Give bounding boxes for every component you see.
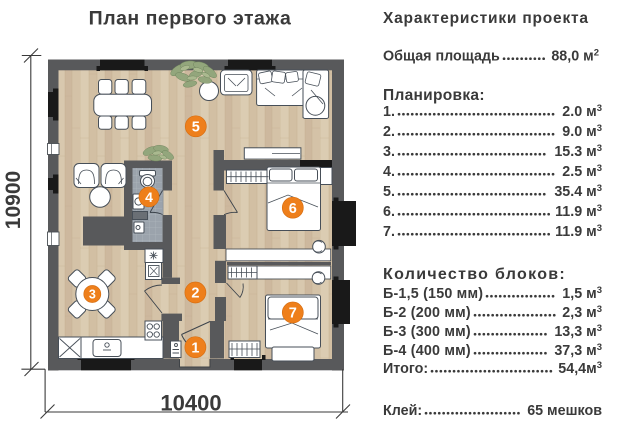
svg-text:Характеристики проекта: Характеристики проекта: [383, 10, 589, 27]
svg-text:План первого этажа: План первого этажа: [89, 8, 292, 30]
svg-text:6.: 6.: [383, 204, 395, 220]
svg-text:13,3 м3: 13,3 м3: [554, 323, 602, 340]
svg-text:3.: 3.: [383, 144, 395, 160]
svg-text:5.: 5.: [383, 184, 395, 200]
svg-text:54,4м3: 54,4м3: [558, 360, 602, 377]
svg-text:Б-1,5 (150 мм): Б-1,5 (150 мм): [383, 286, 483, 302]
svg-text:2.5 м3: 2.5 м3: [562, 163, 602, 180]
svg-text:10400: 10400: [160, 391, 221, 416]
svg-text:1.: 1.: [383, 104, 395, 120]
svg-text:15.3 м3: 15.3 м3: [554, 143, 602, 160]
svg-text:2,3 м3: 2,3 м3: [562, 304, 602, 321]
svg-text:Клей:: Клей:: [383, 403, 422, 419]
svg-text:9.0 м3: 9.0 м3: [562, 123, 602, 140]
svg-text:5: 5: [192, 120, 200, 136]
svg-text:4: 4: [145, 189, 153, 205]
svg-text:4.: 4.: [383, 164, 395, 180]
svg-text:2.: 2.: [383, 124, 395, 140]
svg-text:3: 3: [89, 288, 96, 302]
svg-text:Итого:: Итого:: [383, 361, 428, 377]
svg-text:Б-2 (200 мм): Б-2 (200 мм): [383, 305, 471, 321]
svg-text:11.9 м3: 11.9 м3: [555, 223, 602, 240]
svg-text:6: 6: [289, 201, 297, 217]
svg-text:2: 2: [191, 286, 199, 302]
svg-text:35.4 м3: 35.4 м3: [554, 183, 602, 200]
svg-text:Б-3 (300 мм): Б-3 (300 мм): [383, 324, 471, 340]
svg-text:1: 1: [191, 340, 199, 356]
svg-text:10900: 10900: [2, 171, 25, 229]
svg-text:1,5 м3: 1,5 м3: [562, 285, 602, 302]
svg-text:Планировка:: Планировка:: [383, 87, 485, 104]
svg-text:37,3 м3: 37,3 м3: [554, 342, 602, 359]
svg-text:65 мешков: 65 мешков: [527, 403, 602, 419]
svg-text:Б-4 (400 мм): Б-4 (400 мм): [383, 343, 471, 359]
svg-text:11.9 м3: 11.9 м3: [555, 203, 602, 220]
svg-text:Общая площадь: Общая площадь: [383, 49, 500, 65]
svg-text:2.0 м3: 2.0 м3: [562, 103, 602, 120]
svg-text:7: 7: [289, 306, 297, 322]
svg-text:7.: 7.: [383, 224, 395, 240]
svg-text:Количество блоков:: Количество блоков:: [383, 266, 566, 283]
svg-text:88,0 м2: 88,0 м2: [551, 48, 599, 65]
